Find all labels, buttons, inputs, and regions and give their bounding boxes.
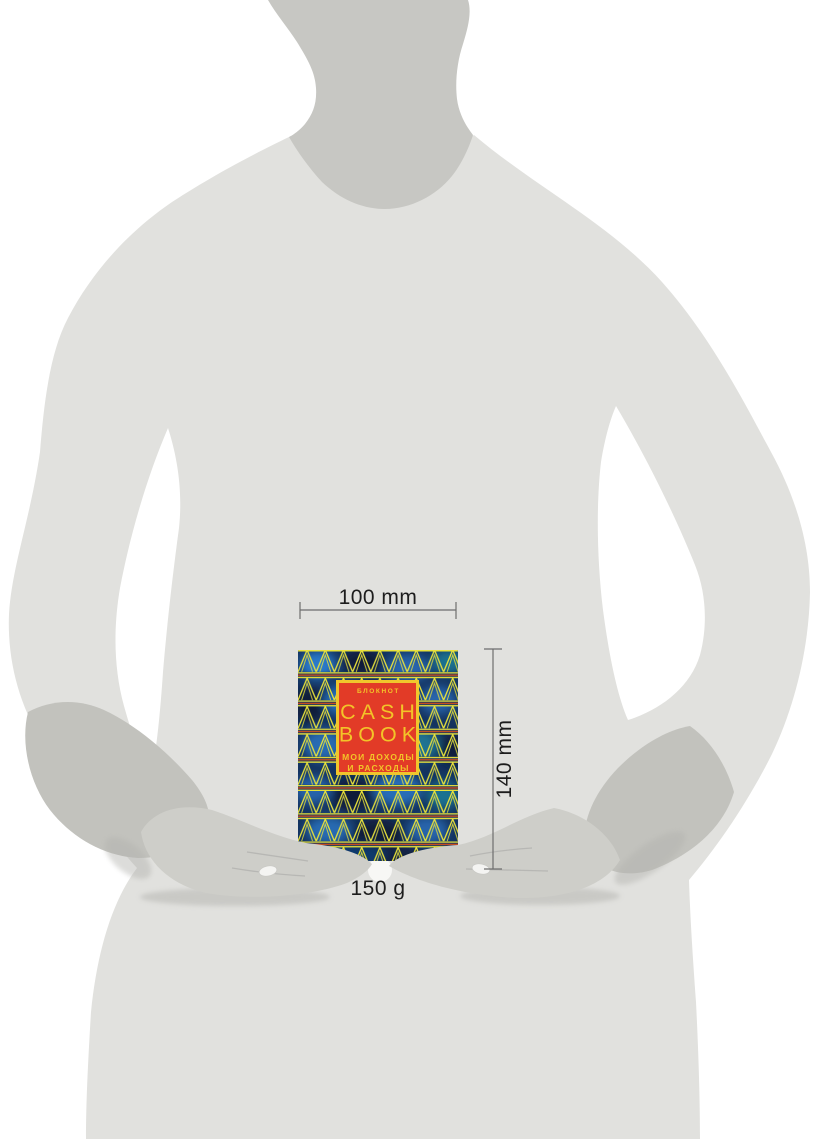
cover-title-line2: BOOK	[339, 723, 421, 747]
cover-top-label: БЛОКНОТ	[357, 688, 400, 695]
notebook-cover: БЛОКНОТ CASH BOOK МОИ ДОХОДЫ И РАСХОДЫ	[294, 650, 467, 872]
height-dimension-label: 140 mm	[493, 720, 516, 799]
human-silhouette	[9, 0, 810, 1139]
illustration-canvas: БЛОКНОТ CASH BOOK МОИ ДОХОДЫ И РАСХОДЫ 1…	[0, 0, 820, 1139]
cover-subtitle-line2: И РАСХОДЫ	[347, 763, 409, 773]
width-dimension-label: 100 mm	[339, 586, 418, 609]
cover-subtitle-line1: МОИ ДОХОДЫ	[342, 752, 415, 762]
product-size-illustration: БЛОКНОТ CASH BOOK МОИ ДОХОДЫ И РАСХОДЫ 1…	[0, 0, 820, 1139]
cover-top-edge-line	[298, 650, 458, 652]
weight-label: 150 g	[350, 877, 405, 900]
cover-title-line1: CASH	[340, 700, 420, 724]
